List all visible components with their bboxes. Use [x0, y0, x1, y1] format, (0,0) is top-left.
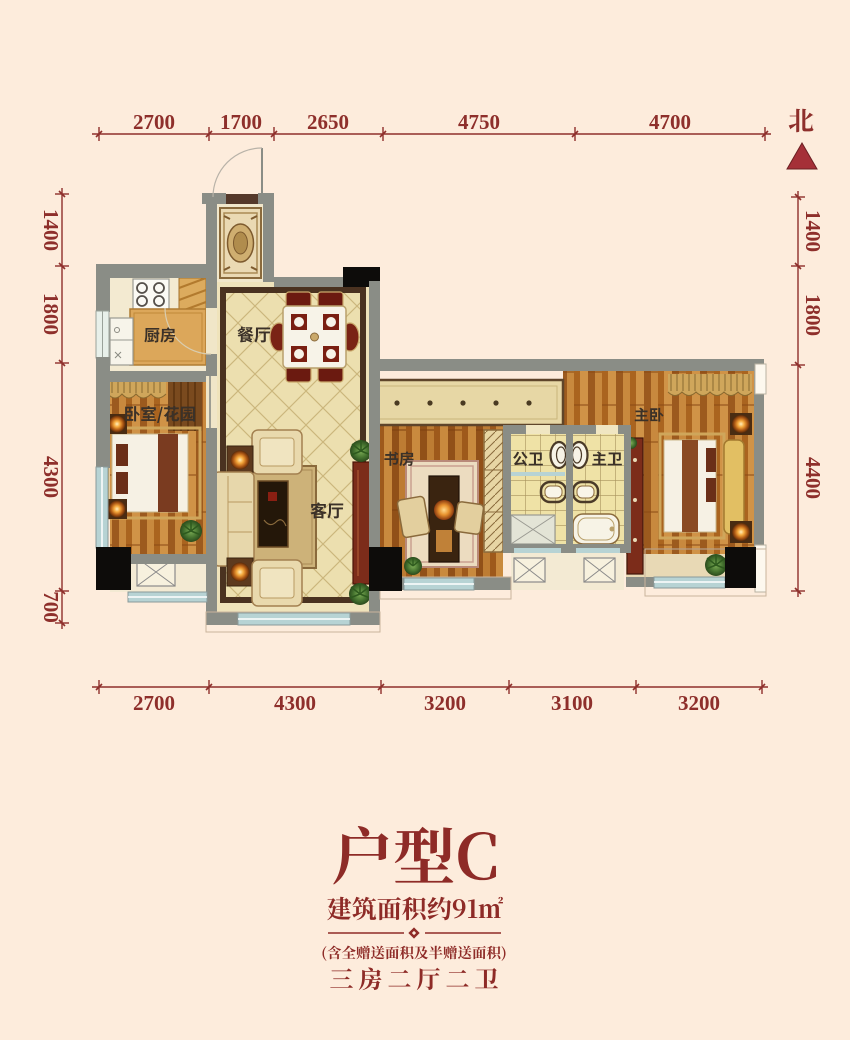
svg-text:4300: 4300 [274, 691, 316, 715]
svg-text:700: 700 [39, 591, 63, 623]
svg-text:3100: 3100 [551, 691, 593, 715]
svg-text:2650: 2650 [307, 110, 349, 134]
svg-text:4750: 4750 [458, 110, 500, 134]
svg-text:1400: 1400 [801, 210, 825, 252]
svg-text:4400: 4400 [801, 457, 825, 499]
svg-text:3200: 3200 [424, 691, 466, 715]
svg-text:1700: 1700 [220, 110, 262, 134]
svg-text:2700: 2700 [133, 110, 175, 134]
svg-text:1400: 1400 [39, 209, 63, 251]
svg-text:1800: 1800 [39, 293, 63, 335]
svg-text:3200: 3200 [678, 691, 720, 715]
svg-text:4700: 4700 [649, 110, 691, 134]
svg-text:2700: 2700 [133, 691, 175, 715]
svg-text:4300: 4300 [39, 456, 63, 498]
svg-text:1800: 1800 [801, 294, 825, 336]
